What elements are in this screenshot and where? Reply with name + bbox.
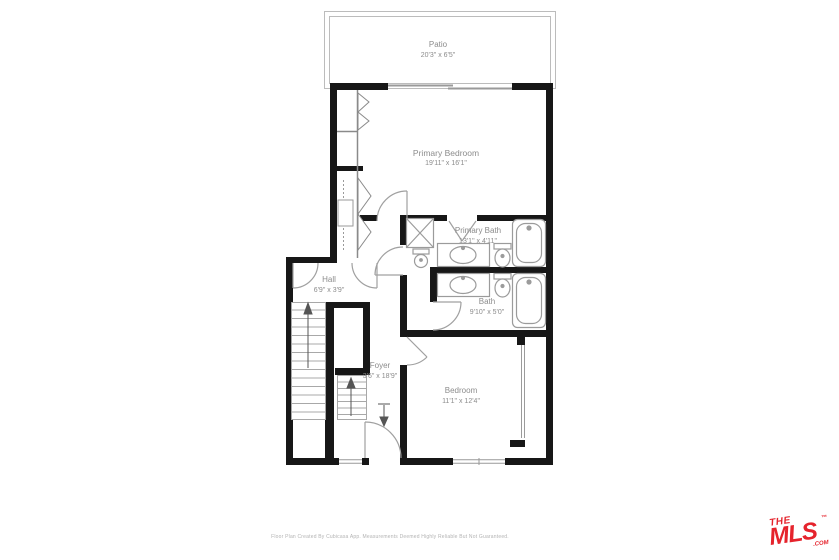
bath-fixtures bbox=[438, 274, 546, 328]
floorplan-image: Patio 20'3" x 6'5" Primary Bedroom 19'11… bbox=[0, 0, 839, 560]
closet-partitions bbox=[337, 90, 358, 258]
bifold-doors bbox=[358, 93, 371, 250]
toilet-icon bbox=[494, 244, 511, 250]
floorplan-drawing bbox=[0, 0, 839, 560]
bedroom-closet-doors bbox=[522, 345, 525, 438]
patio-outline bbox=[325, 12, 556, 89]
toilet-icon bbox=[494, 274, 511, 280]
walls bbox=[286, 83, 553, 465]
toilet-icon bbox=[413, 249, 429, 254]
closet-rail-shelf bbox=[338, 180, 353, 250]
primary-bath-fixtures bbox=[407, 219, 546, 268]
footer-disclaimer: Floor Plan Created By Cubicasa App. Meas… bbox=[271, 534, 509, 540]
